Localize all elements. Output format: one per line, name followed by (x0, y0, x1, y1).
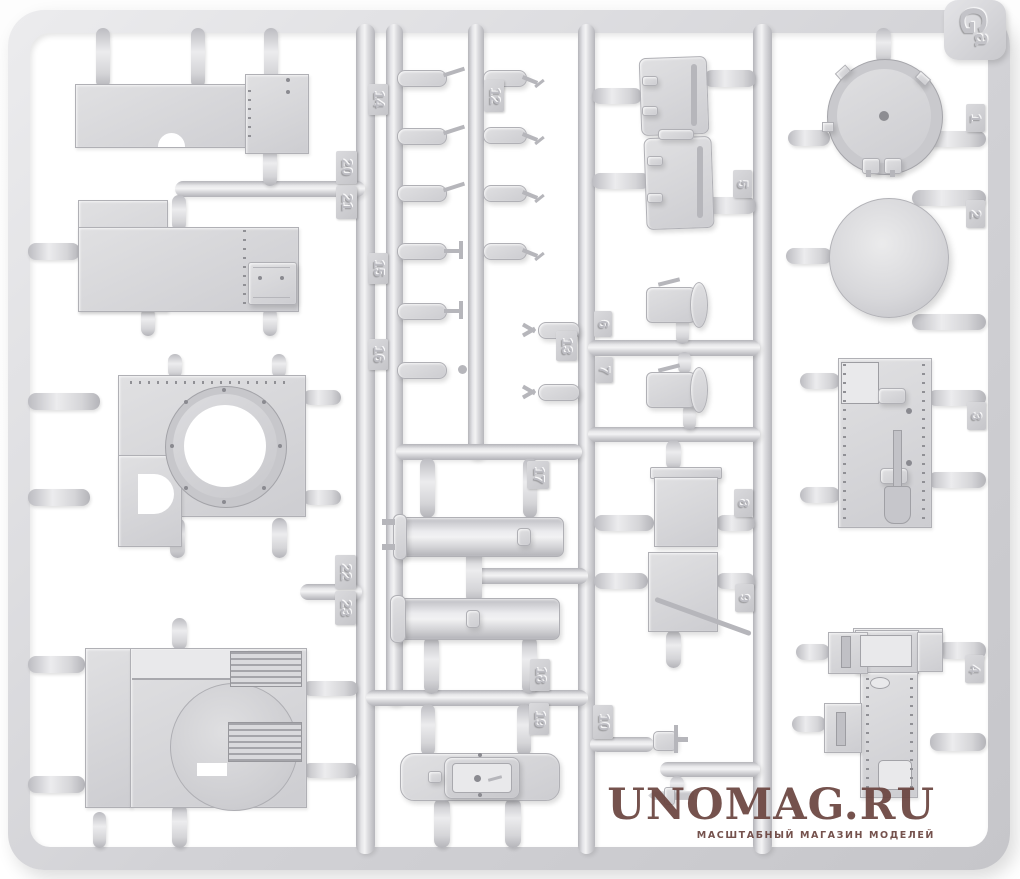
part-number-tag-14: 14 (368, 84, 388, 115)
part-small-lever (397, 128, 447, 145)
rivet-line (243, 230, 246, 306)
part-small-lever (397, 185, 447, 202)
hatch-handle (474, 775, 481, 782)
ring-bolt (262, 400, 266, 404)
cylinder-boss (466, 610, 480, 628)
runner-horizontal-part11 (660, 762, 760, 777)
gate-stub (678, 352, 691, 374)
ring-bolt (184, 400, 188, 404)
gate-stub (28, 656, 85, 673)
gate-stub (704, 70, 756, 87)
door-ridge (697, 146, 703, 218)
gate-stub (786, 248, 832, 264)
knob-ball (458, 365, 467, 374)
gate-stub (788, 130, 830, 146)
cylinder-end-cap (393, 514, 407, 560)
plate-boss (906, 408, 912, 414)
runner-vertical-3 (468, 24, 484, 460)
gate-stub (141, 308, 155, 336)
part-fork-handle (483, 243, 527, 260)
cylinder-hook (382, 544, 395, 550)
part-number-tag-8: 8 (734, 489, 753, 517)
runner-horizontal-part10 (590, 737, 654, 752)
part-number-tag-13: 13 (556, 331, 577, 361)
gate-stub (792, 716, 826, 732)
bolt-detail (286, 78, 290, 82)
gate-stub (716, 515, 755, 531)
gate-stub (666, 440, 681, 470)
gate-stub (172, 195, 186, 231)
deck-slot (197, 763, 227, 776)
hatch-panel (452, 763, 512, 793)
hatch-detail (248, 262, 297, 305)
hatch-clasp (478, 753, 482, 757)
gate-stub (434, 798, 450, 848)
hatch-side-tab (428, 771, 442, 783)
gate-stub (303, 490, 341, 505)
ventilator-flange (690, 367, 708, 413)
rivet-line (922, 364, 925, 520)
hatch-inner-line (253, 297, 290, 298)
door-hinge-tab (647, 193, 663, 203)
part-number-tag-2: 2 (966, 200, 985, 228)
round-hatch-center (879, 111, 889, 121)
valve-tip (678, 737, 688, 742)
door-ridge (691, 64, 697, 126)
gate-stub (93, 812, 106, 848)
runner-vertical-1 (356, 24, 375, 854)
ring-bolt (222, 500, 226, 504)
gate-stub (263, 308, 277, 336)
gate-stub (421, 704, 435, 756)
part-number-tag-6: 6 (594, 311, 612, 337)
sprue-letter-sub: a (969, 33, 996, 46)
sprue-letter-main: G (951, 7, 993, 36)
part-ventilator-cover (646, 372, 696, 408)
gate-stub (28, 393, 100, 410)
rivet-line (248, 90, 251, 142)
ring-bolt (170, 444, 174, 448)
cylinder-hook (382, 519, 395, 525)
part-stowage-box (654, 477, 718, 547)
hatch-clasp (478, 793, 482, 797)
gate-stub (28, 776, 85, 793)
part-number-tag-17: 17 (527, 461, 549, 489)
part-number-tag-18: 18 (530, 659, 550, 691)
part-number-tag-23: 23 (335, 591, 356, 625)
hinge-pin (866, 170, 871, 177)
gate-stub (928, 472, 986, 488)
gate-stub (272, 518, 287, 558)
gate-stub (594, 515, 654, 531)
plate-boss (906, 460, 912, 466)
gate-stub (28, 243, 80, 260)
part-small-valve (397, 243, 447, 260)
deck-grille-top (230, 651, 302, 687)
hatch-hinge-block (862, 158, 880, 174)
plate-clamp (878, 388, 906, 404)
gate-stub (592, 88, 642, 104)
part-number-tag-4: 4 (965, 655, 984, 683)
part-number-tag-15: 15 (368, 253, 388, 284)
shovel-blade (884, 486, 911, 524)
deck-grille-fan (228, 722, 302, 762)
part-number-tag-7: 7 (595, 357, 613, 383)
part-ventilator-cover (646, 287, 696, 323)
hinge-pin (890, 170, 895, 177)
panel-latch (841, 636, 851, 668)
part-fork-handle-left (538, 384, 580, 401)
turret-ring-opening (184, 405, 266, 487)
hatch-inner-line (253, 267, 290, 268)
part-hatch-door-lower (643, 136, 714, 230)
part-bracket-ext (917, 632, 943, 672)
part-number-tag-22: 22 (335, 555, 356, 589)
gate-stub (303, 681, 358, 696)
shovel-shaft (893, 430, 902, 492)
part-number-tag-3: 3 (967, 402, 986, 430)
part-small-knob (397, 362, 447, 379)
ring-bolt (184, 486, 188, 490)
gate-stub (505, 798, 521, 848)
part-dome-disc (829, 198, 949, 318)
hatch-rim-tab (822, 122, 834, 132)
gate-stub (191, 28, 205, 88)
gate-stub (96, 28, 110, 88)
bolt-detail (286, 90, 290, 94)
part-hatch-door-upper (639, 56, 710, 136)
gate-stub (424, 636, 439, 694)
part-engine-deck-side (85, 648, 132, 808)
valve-cross (459, 301, 463, 319)
gate-stub (28, 489, 90, 506)
rivet-line (866, 678, 869, 790)
rivet-line (843, 364, 846, 520)
door-link-bump (658, 129, 694, 140)
watermark-title: UNOMAG.RU (607, 784, 935, 827)
gate-stub (594, 573, 648, 589)
part-fork-handle (483, 185, 527, 202)
gate-stub (912, 314, 986, 330)
part-fork-handle (483, 127, 527, 144)
part-number-tag-12: 12 (484, 80, 504, 112)
part-number-tag-21: 21 (336, 186, 357, 219)
gate-stub (930, 733, 986, 751)
door-hinge-tab (642, 106, 658, 116)
rivet-line (910, 678, 913, 790)
gate-stub (796, 644, 830, 660)
ring-bolt (278, 444, 282, 448)
shop-watermark: UNOMAG.RU МАСШТАБНЫЙ МАГАЗИН МОДЕЛЕЙ (607, 784, 935, 841)
gate-stub (303, 390, 341, 405)
plate-top-box (841, 362, 879, 404)
gate-stub (666, 630, 681, 668)
door-hinge-tab (642, 76, 658, 86)
hatch-latch (280, 276, 284, 280)
gate-stub (800, 373, 840, 389)
part-small-valve (397, 303, 447, 320)
cylinder-boss (517, 528, 531, 546)
runner-horizontal-mid-1 (588, 340, 760, 356)
gate-stub (800, 487, 840, 503)
ventilator-flange (690, 282, 708, 328)
watermark-subtitle: МАСШТАБНЫЙ МАГАЗИН МОДЕЛЕЙ (607, 830, 935, 841)
gate-stub (303, 763, 358, 778)
part-number-tag-5: 5 (733, 170, 752, 198)
part-number-tag-9: 9 (735, 584, 754, 612)
part-number-tag-10: 10 (593, 705, 613, 739)
part-number-tag-20: 20 (336, 151, 357, 184)
part-number-tag-19: 19 (529, 703, 549, 735)
door-hinge-tab (647, 156, 663, 166)
part-hull-roof-plate-step (245, 74, 309, 154)
hatch-latch (258, 276, 262, 280)
gate-stub (172, 618, 187, 650)
cylinder-end-ring (390, 595, 406, 643)
sprue-letter-mark: G a (944, 0, 1006, 60)
gate-stub (592, 173, 650, 189)
part-small-lever (397, 70, 447, 87)
rivet-line (130, 381, 290, 384)
part-number-tag-16: 16 (368, 339, 388, 370)
part-cylinder-tank (400, 517, 564, 557)
ring-bolt (222, 388, 226, 392)
bracket-head-panel (860, 635, 912, 667)
valve-cross (459, 241, 463, 259)
panel-latch (836, 712, 846, 746)
runner-horizontal-bottom (366, 690, 588, 706)
gate-stub (172, 804, 187, 848)
product-photo-background: G a 12345678910121314151617181920212223 … (0, 0, 1020, 879)
bracket-oval (870, 677, 890, 689)
part-number-tag-1: 1 (966, 104, 985, 132)
runner-horizontal-cyl-mid (470, 568, 588, 584)
gate-stub (420, 458, 435, 518)
ring-bolt (262, 486, 266, 490)
